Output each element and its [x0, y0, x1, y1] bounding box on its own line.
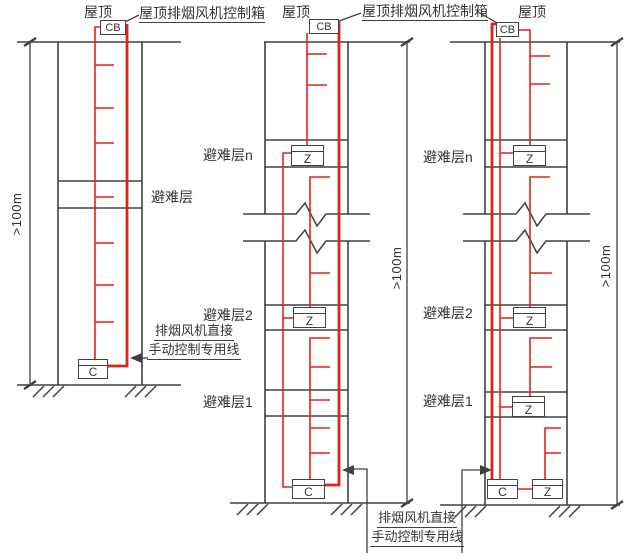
branch-box-right-ground: Z: [532, 479, 563, 499]
refuge-floor-1-label-right: 避难层1: [423, 393, 473, 409]
branch-box-label: Z: [294, 314, 325, 327]
break-symbols: [243, 203, 590, 253]
roof-control-box-label: CB: [310, 20, 338, 33]
callout-leader-lines: [125, 13, 497, 553]
branch-box-label: Z: [292, 152, 323, 165]
refuge-floor-n-label-middle: 避难层n: [203, 147, 253, 163]
manual-control-line-text-1: 排烟风机直接: [154, 322, 234, 341]
roof-control-box-middle: CB: [309, 19, 339, 34]
control-box-right-ground: C: [487, 479, 518, 499]
refuge-floor-label-left: 避难层: [151, 189, 193, 205]
branch-box-label: Z: [514, 314, 545, 327]
roof-control-box-right: CB: [496, 22, 519, 37]
manual-control-line-text-2: 手动控制专用线: [147, 341, 240, 360]
diagram-linework: [0, 0, 640, 557]
control-box-label: C: [488, 486, 517, 498]
branch-box-label: Z: [533, 486, 562, 498]
height-dimension-right: >100m: [598, 236, 612, 296]
left-leader-arrowhead: [130, 353, 142, 363]
left-riser-and-taps: [95, 27, 114, 359]
height-dimension-middle: >100m: [389, 238, 403, 298]
branch-box-right-refuge-2: Z: [513, 307, 546, 328]
roof-control-box-callout-middle: 屋顶排烟风机控制箱: [362, 3, 488, 21]
middle-break: [243, 203, 370, 253]
branch-box-right-refuge-n: Z: [513, 145, 546, 166]
manual-control-line-text-1: 排烟风机直接: [377, 509, 457, 528]
smoke-exhaust-fan-wiring-diagram: CB CB CB Z Z Z Z Z Z C C C 屋顶 屋顶: [0, 0, 640, 557]
roof-label-right: 屋顶: [518, 4, 546, 20]
roof-control-box-left: CB: [100, 20, 126, 35]
branch-box-label: Z: [514, 152, 545, 165]
height-dimension-left: >100m: [9, 184, 23, 244]
control-box-label: C: [79, 366, 107, 378]
leader-arrowheads: [130, 353, 492, 475]
bottom-right-leader-arrowhead: [480, 465, 492, 475]
manual-control-line-callout-bottom: 排烟风机直接 手动控制专用线: [368, 509, 466, 547]
roof-control-box-label: CB: [497, 23, 518, 36]
refuge-floor-2-label-right: 避难层2: [423, 305, 473, 321]
branch-box-middle-refuge-2: Z: [293, 307, 326, 328]
refuge-floor-1-label-middle: 避难层1: [203, 394, 253, 410]
roof-label-left: 屋顶: [84, 4, 112, 20]
left-shaft: [58, 42, 142, 385]
right-break: [463, 203, 590, 253]
roof-control-box-callout-left: 屋顶排烟风机控制箱: [139, 5, 265, 23]
right-shaft: [485, 42, 567, 505]
roof-label-middle: 屋顶: [282, 4, 310, 20]
manual-control-line-callout-left: 排烟风机直接 手动控制专用线: [146, 322, 242, 360]
roof-control-box-label: CB: [101, 21, 125, 34]
branch-box-middle-refuge-n: Z: [291, 145, 324, 166]
refuge-floor-n-label-right: 避难层n: [423, 149, 473, 165]
manual-control-line-text-2: 手动控制专用线: [370, 528, 463, 547]
right-riser-and-taps: [500, 30, 561, 489]
middle-riser-and-taps: [283, 33, 330, 487]
refuge-floor-2-label-middle: 避难层2: [203, 307, 253, 323]
branch-box-right-refuge-1: Z: [512, 396, 545, 417]
branch-box-label: Z: [513, 403, 544, 416]
control-box-label: C: [293, 486, 324, 498]
control-box-middle-ground: C: [292, 479, 325, 499]
control-box-left-ground: C: [78, 359, 108, 379]
